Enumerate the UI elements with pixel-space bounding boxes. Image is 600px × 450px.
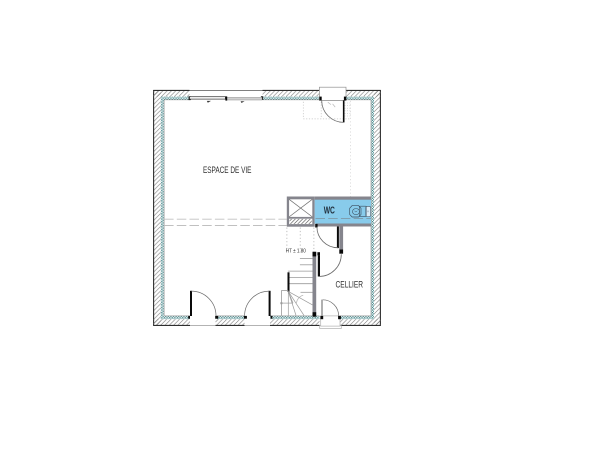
- svg-text:CELLIER: CELLIER: [336, 279, 364, 290]
- svg-text:ESPACE DE VIE: ESPACE DE VIE: [203, 164, 252, 175]
- svg-text:WC: WC: [324, 205, 336, 216]
- svg-text:HT ± 1.80: HT ± 1.80: [286, 248, 306, 254]
